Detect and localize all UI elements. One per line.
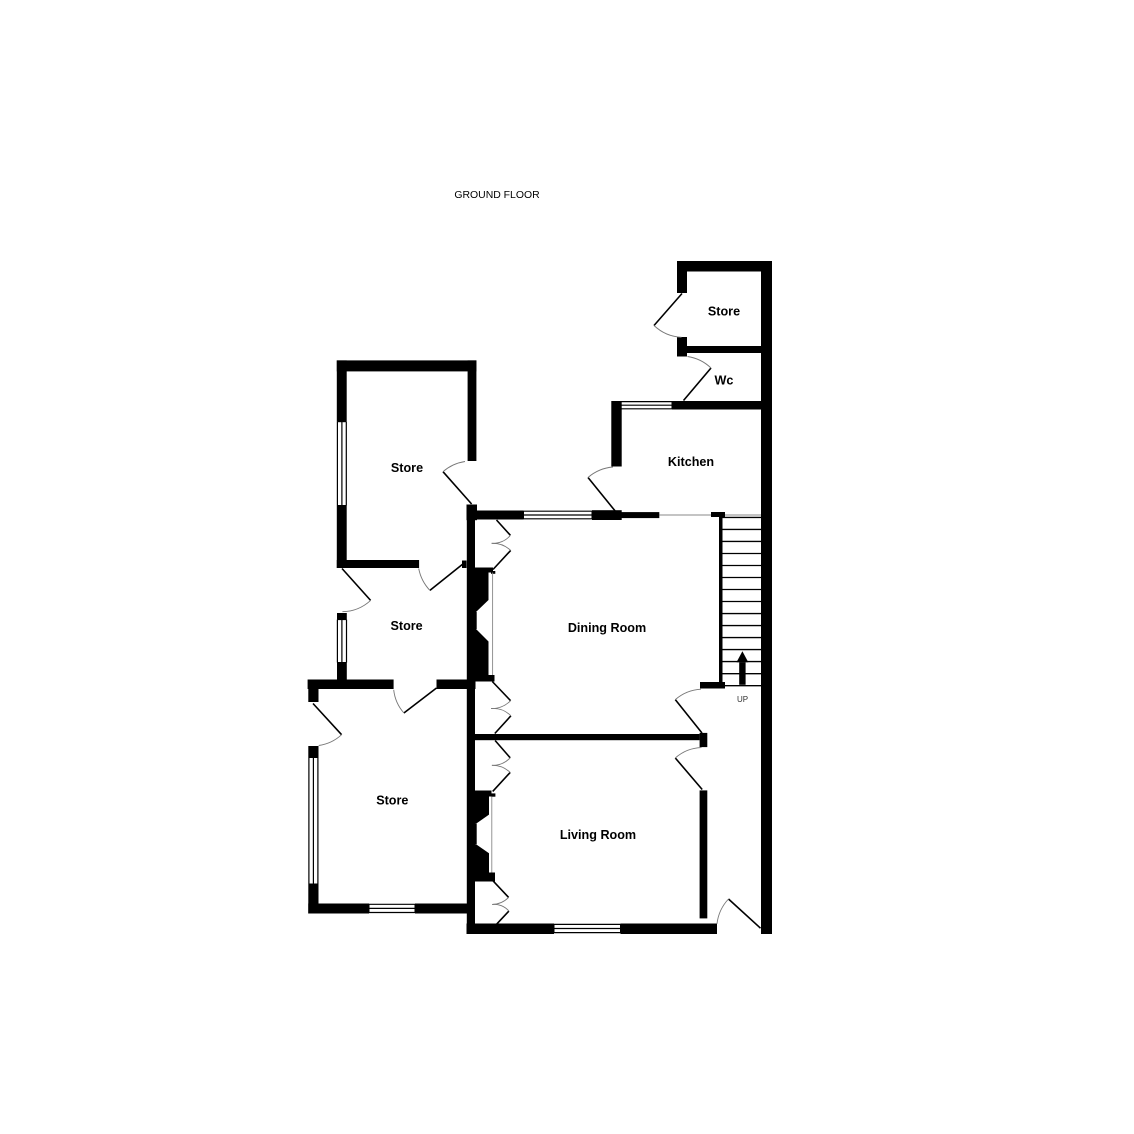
svg-text:UP: UP (737, 695, 748, 704)
svg-text:Store: Store (390, 619, 422, 633)
svg-text:Store: Store (391, 461, 423, 475)
svg-text:Dining Room: Dining Room (568, 621, 646, 635)
svg-text:Store: Store (708, 305, 740, 319)
svg-text:Living Room: Living Room (560, 828, 636, 842)
svg-text:GROUND FLOOR: GROUND FLOOR (454, 190, 540, 201)
svg-text:Store: Store (376, 794, 408, 808)
svg-text:Kitchen: Kitchen (668, 455, 714, 469)
svg-text:Wc: Wc (715, 374, 734, 388)
